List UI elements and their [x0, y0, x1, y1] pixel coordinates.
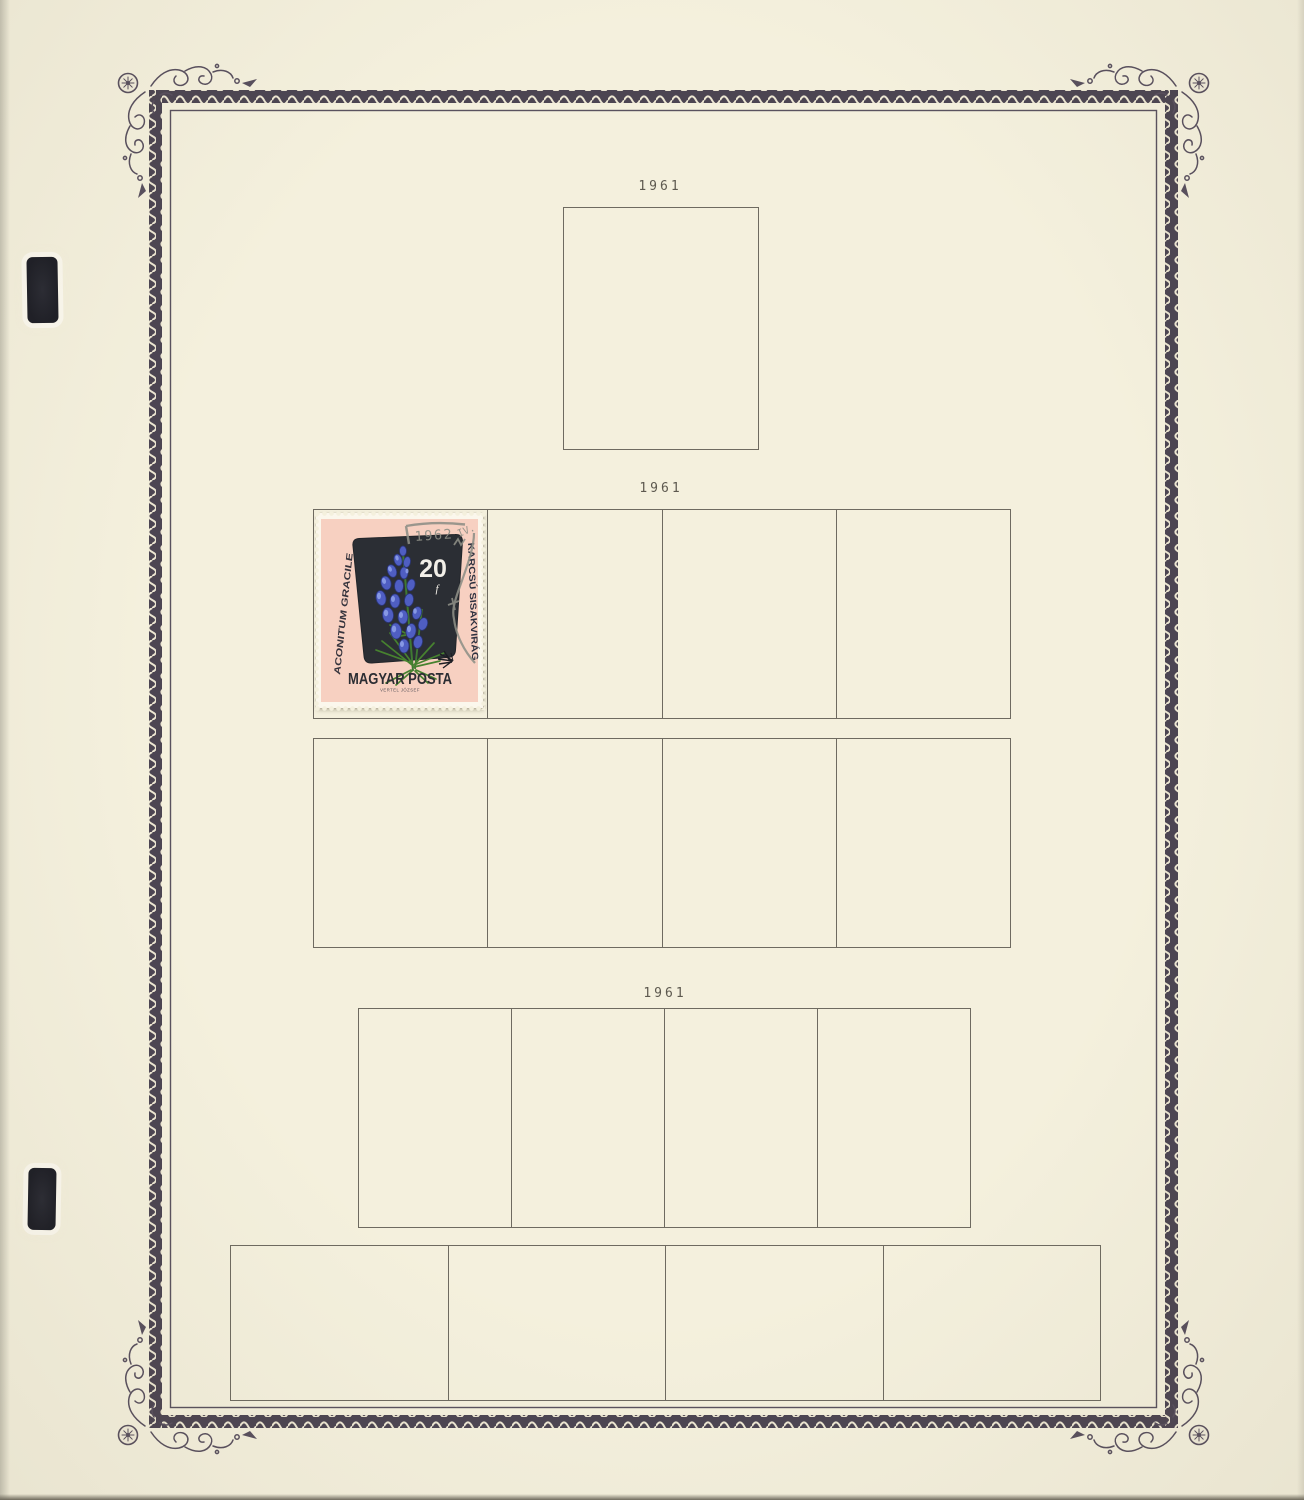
- stamp-slot-row: [230, 1245, 1101, 1401]
- stamp-slot: [359, 1009, 512, 1227]
- border-band-bottom: [149, 1415, 1178, 1428]
- corner-ornament-top-left: [119, 64, 258, 198]
- section-year-label-2: 1961: [551, 481, 771, 496]
- stamp-country: MAGYAR POSTA: [348, 671, 452, 688]
- stamp-imprint: VERTEL JÓZSEF: [380, 688, 420, 693]
- stamp-slot: [314, 739, 488, 947]
- stamp-slot: [666, 1246, 884, 1400]
- stamp-slot: [818, 1009, 970, 1227]
- stamp-slot: [837, 739, 1010, 947]
- stamp-slot: [488, 510, 662, 718]
- stamp-slot: [665, 1009, 818, 1227]
- stamp-slot: [563, 207, 759, 450]
- stamp-hungary-aconitum: 20 f ACONITUM GRACILE KARCSÚ SISAKVIRÁG …: [316, 513, 483, 708]
- stamp-slot: [449, 1246, 667, 1400]
- stamp-denomination: 20: [419, 555, 447, 583]
- stamp-slot: [231, 1246, 449, 1400]
- stamp-slot: [488, 739, 662, 947]
- stamp-slot: [837, 510, 1010, 718]
- border-band-left: [149, 90, 162, 1428]
- postmark-year: 1962: [414, 526, 454, 545]
- page-edge-shadow-left: [0, 0, 10, 1500]
- corner-ornament-top-right: [1070, 64, 1209, 198]
- stamp-slot: [663, 739, 837, 947]
- binder-hole: [27, 1168, 56, 1230]
- stamp-artwork: 20 f ACONITUM GRACILE KARCSÚ SISAKVIRÁG …: [316, 513, 483, 708]
- stamp-slot-row: [358, 1008, 971, 1228]
- page-edge-shadow-right: [1297, 0, 1304, 1500]
- binder-hole: [26, 257, 58, 324]
- stamp-slot: [512, 1009, 665, 1227]
- border-band-top: [149, 90, 1178, 103]
- section-year-label-1: 1961: [550, 179, 770, 194]
- stamp-slot: [663, 510, 837, 718]
- section-year-label-3: 1961: [555, 986, 775, 1001]
- page-edge-shadow-bottom: [0, 1494, 1304, 1500]
- border-band-right: [1165, 90, 1178, 1428]
- stamp-slot: [884, 1246, 1101, 1400]
- stamp-slot-row: [313, 738, 1011, 948]
